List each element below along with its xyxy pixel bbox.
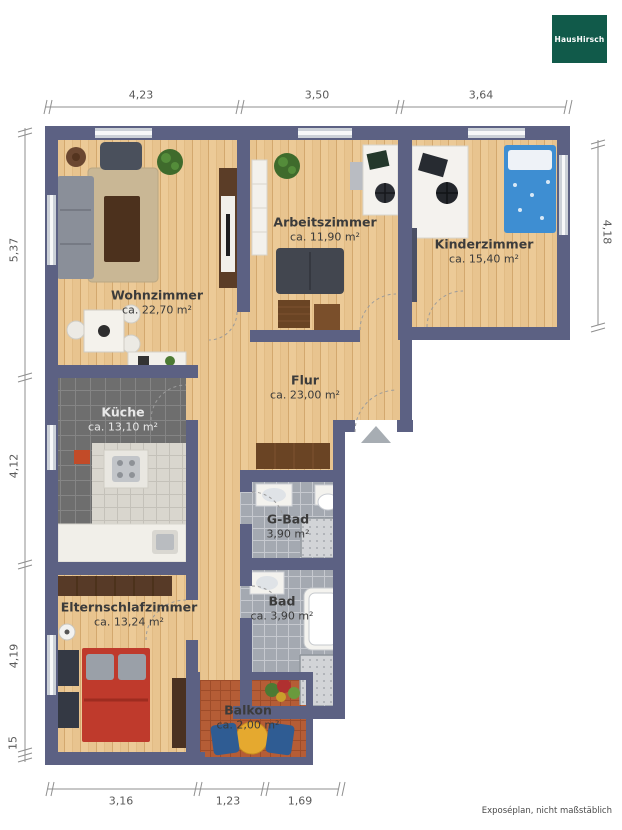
window-pane <box>468 131 525 135</box>
wall-kueche-bottom <box>45 562 198 575</box>
room-label-arbeitszimmer: Arbeitszimmer ca. 11,90 m² <box>273 215 376 246</box>
room-label-elternschlafzimmer: Elternschlafzimmer ca. 13,24 m² <box>61 600 198 631</box>
wall-arbeits-kinder <box>398 126 412 340</box>
nightstand <box>57 650 79 686</box>
window-pane <box>50 635 53 695</box>
wall-arbeits-bottom <box>250 330 360 342</box>
dim-left-2: 4,12 <box>8 454 21 479</box>
floorplan-page: 4,23 3,50 3,64 5,37 4,12 4,19 15 4,18 3,… <box>0 0 622 830</box>
bed-pillow <box>118 654 146 680</box>
side-table-top <box>72 153 80 161</box>
wall-kinder-bottom <box>398 327 570 340</box>
wall-balkon-left <box>193 672 200 765</box>
hall-dresser <box>256 443 330 469</box>
window-pane <box>562 155 565 235</box>
wall-bad-left <box>240 618 252 706</box>
dim-bottom-3: 1,69 <box>288 795 313 808</box>
wall-balkon-bottom <box>193 757 313 765</box>
dim-right-1: 4,18 <box>601 220 614 245</box>
sideboard-decor <box>138 356 149 365</box>
sink-bowl <box>256 576 278 590</box>
nightstand <box>57 692 79 728</box>
window-pane <box>50 195 53 265</box>
wall-balkon-top <box>240 672 306 680</box>
wall-wohn-bottom <box>45 365 198 378</box>
dim-bottom-2: 1,23 <box>216 795 241 808</box>
dim-left-1: 5,37 <box>8 238 21 263</box>
table-decor <box>98 325 110 337</box>
plant-leaf <box>288 166 296 174</box>
plant-arbeitszimmer-icon <box>274 153 300 179</box>
room-label-gbad: G-Bad 3,90 m² <box>266 512 309 543</box>
logo-text: HausHirsch <box>555 35 605 44</box>
wall-bad-left <box>240 470 252 492</box>
tv-icon <box>226 214 230 256</box>
armchair <box>100 142 142 170</box>
window-pane <box>50 425 53 470</box>
dim-top-3: 3,64 <box>469 89 494 102</box>
room-label-kinderzimmer: Kinderzimmer ca. 15,40 m² <box>435 237 534 268</box>
wall-schlaf-right <box>186 575 198 600</box>
dim-bottom-1: 3,16 <box>109 795 134 808</box>
coffee-table <box>104 196 140 262</box>
plant-leaf <box>171 162 179 170</box>
sideboard-b <box>314 304 340 330</box>
dim-left-3: 4,19 <box>8 644 21 669</box>
wall-bottom <box>45 752 205 765</box>
window-pane <box>298 131 352 135</box>
dim-left-4: 15 <box>7 736 20 750</box>
footnote: Exposéplan, nicht maßstäblich <box>482 806 612 816</box>
wall-flur-right <box>400 340 412 432</box>
wall-bad-left <box>240 524 252 586</box>
bed-pillow <box>86 654 114 680</box>
wall-balkon-right <box>306 672 313 765</box>
dim-top-1: 4,23 <box>129 89 154 102</box>
room-label-kueche: Küche ca. 13,10 m² <box>88 405 158 436</box>
kid-bed-pillow <box>508 150 552 170</box>
plant-leaf <box>161 153 171 163</box>
sofa <box>57 176 94 279</box>
dim-top-2: 3,50 <box>305 89 330 102</box>
dining-chair <box>122 335 140 353</box>
cooktop <box>112 456 140 482</box>
dining-chair <box>67 321 85 339</box>
haushirsch-logo: HausHirsch <box>552 15 607 63</box>
wall-gbad-top <box>240 470 345 482</box>
room-label-wohnzimmer: Wohnzimmer ca. 22,70 m² <box>111 288 203 319</box>
file-cabinet <box>350 162 364 190</box>
room-label-balkon: Balkon ca. 2,00 m² <box>217 703 280 734</box>
plant-wohnzimmer-icon <box>157 149 183 175</box>
plant-small-icon <box>165 356 175 366</box>
cutting-board <box>74 450 90 464</box>
room-label-flur: Flur ca. 23,00 m² <box>270 373 340 404</box>
wall-gbad-bad <box>240 558 345 570</box>
plant-leaf <box>278 157 288 167</box>
sink-basin <box>156 534 174 550</box>
room-label-bad: Bad ca. 3,90 m² <box>251 594 314 625</box>
window-pane <box>95 131 152 135</box>
wall-wohn-arbeits <box>237 126 250 312</box>
wall-kueche-right <box>186 420 198 562</box>
